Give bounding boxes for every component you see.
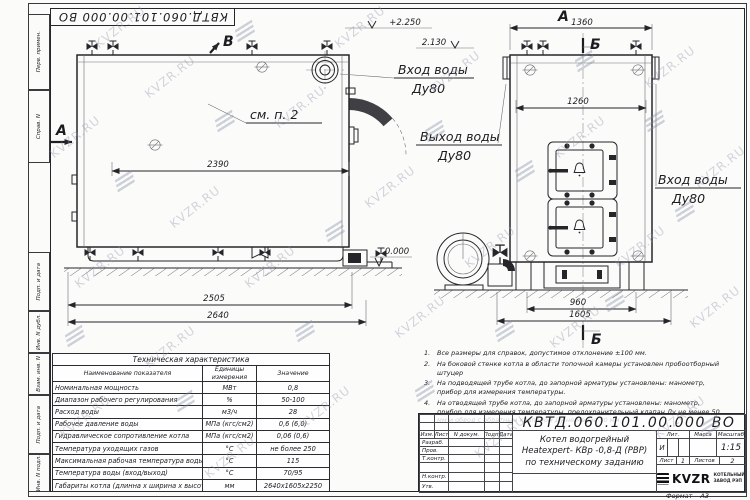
see-note-label: см. п. 2 xyxy=(250,107,298,122)
section-label-b-top: Б xyxy=(590,37,601,53)
elevation-zero: 0.000 xyxy=(385,247,409,257)
note-number: 2. xyxy=(424,360,437,378)
table-row: Максимальная рабочая температура воды °С… xyxy=(53,455,329,467)
note-text: Все размеры для справок, допустимое откл… xyxy=(437,349,724,358)
note-number: 1. xyxy=(424,349,437,358)
table-row: Температура уходящих газов °С не более 2… xyxy=(53,443,329,455)
inlet-label: Вход воды xyxy=(398,62,468,77)
company-cell: KVZR КОТЕЛЬНЫЙ ЗАВОД РЭП xyxy=(656,464,746,493)
inlet-dn-label: Ду80 xyxy=(411,81,445,96)
dim-2640: 2640 xyxy=(207,311,229,321)
kvzr-logo-icon xyxy=(657,473,669,485)
table-row: Расход воды м3/ч 28 xyxy=(53,406,329,418)
row-unit: % xyxy=(203,394,257,405)
company-name: КОТЕЛЬНЫЙ ЗАВОД РЭП xyxy=(713,473,745,484)
row-name: Расход воды xyxy=(53,406,203,417)
row-name: Гидравлическое сопротивление котла xyxy=(53,431,203,442)
product-name: Котел водогрейный Heatexpert- КВр -0,8-Д… xyxy=(512,430,657,474)
row-unit: мм xyxy=(203,480,257,492)
row-value: 70/95 xyxy=(257,468,329,479)
drawing-sheet: { "meta": { "doc_number": "КВТД.060.101.… xyxy=(0,0,750,500)
side-inlet-dn-label: Ду80 xyxy=(671,191,705,206)
row-name: Габариты котла (длинна х ширина х высота… xyxy=(53,480,203,492)
row-value: 28 xyxy=(257,406,329,417)
scale-value: 1:15 xyxy=(716,438,746,457)
dim-1260: 1260 xyxy=(567,97,589,107)
mass-value xyxy=(689,438,717,457)
note-text: На подводящей трубе котла, до запорной а… xyxy=(437,379,724,397)
row-unit: МВт xyxy=(203,382,257,393)
spec-table: Техническая характеристика Наименование … xyxy=(52,353,330,492)
spec-table-title: Техническая характеристика xyxy=(53,354,329,366)
row-name: Максимальная рабочая температура воды xyxy=(53,455,203,466)
row-value: 50-100 xyxy=(257,394,329,405)
table-row: Температура воды (вход/выход) °С 70/95 xyxy=(53,468,329,480)
section-label-a: А xyxy=(55,123,67,139)
note-number: 3. xyxy=(424,379,437,397)
row-value: 0,6 (6,0) xyxy=(257,419,329,430)
dim-2505: 2505 xyxy=(203,294,225,304)
margin-cell: Инв. N подл. xyxy=(28,454,50,492)
side-inlet-label: Вход воды xyxy=(658,172,728,187)
title-block-doc-number: КВТД.060.101.00.000 ВО xyxy=(512,414,746,431)
row-name: Номинальная мощность xyxy=(53,382,203,393)
row-name: Диапазон рабочего регулирования xyxy=(53,394,203,405)
dim-2390: 2390 xyxy=(207,160,229,170)
title-block: КВТД.060.101.00.000 ВО Изм. Лист N докум… xyxy=(418,413,745,492)
front-view: В А см. п. 2 Вход воды Ду80 Выход воды Д… xyxy=(50,18,506,326)
lower-door xyxy=(548,199,617,256)
row-unit: °С xyxy=(203,455,257,466)
outlet-dn-label: Ду80 xyxy=(437,148,471,163)
row-name: Рабочее давление воды xyxy=(53,419,203,430)
row-name: Температура уходящих газов xyxy=(53,443,203,454)
row-unit: °С xyxy=(203,443,257,454)
row-value: 0,06 (0,6) xyxy=(257,431,329,442)
door-swing-arc xyxy=(393,118,406,155)
elevation-mid: 2.130 xyxy=(422,38,446,48)
row-name: Температура воды (вход/выход) xyxy=(53,468,203,479)
side-view: А 1360 Б 1260 960 1605 Б Вход воды Ду80 xyxy=(434,9,741,348)
note-item: 2. На боковой стенке котла в области топ… xyxy=(424,360,724,378)
spec-table-rows: Номинальная мощность МВт 0,8 Диапазон ра… xyxy=(53,382,329,492)
note-item: 1. Все размеры для справок, допустимое о… xyxy=(424,349,724,358)
elevation-top: +2.250 xyxy=(389,18,420,28)
row-value: 115 xyxy=(257,455,329,466)
col-header-unit: Единицы измерения xyxy=(203,366,257,381)
table-row: Номинальная мощность МВт 0,8 xyxy=(53,382,329,394)
note-item: 3. На подводящей трубе котла, до запорно… xyxy=(424,379,724,397)
row-value: 0,8 xyxy=(257,382,329,393)
dim-960: 960 xyxy=(570,298,586,308)
dim-1360: 1360 xyxy=(571,18,593,28)
company-logo-text: KVZR xyxy=(672,472,711,486)
table-row: Рабочее давление воды МПа (кгс/см2) 0,6 … xyxy=(53,419,329,431)
section-label-v: В xyxy=(223,34,234,50)
margin-cell: Подп. и дата xyxy=(28,395,50,454)
row-value: 2640х1605х2250 xyxy=(257,480,329,492)
row-unit: °С xyxy=(203,468,257,479)
col-header-value: Значение xyxy=(257,366,329,381)
note-text: На боковой стенке котла в области топочн… xyxy=(437,360,724,378)
format-note: ФорматА3 xyxy=(630,492,745,500)
center-mark xyxy=(255,62,270,72)
row-unit: МПа (кгс/см2) xyxy=(203,419,257,430)
table-row: Гидравлическое сопротивление котла МПа (… xyxy=(53,431,329,443)
spec-table-header: Наименование показателя Единицы измерени… xyxy=(53,366,329,382)
view-label-a: А xyxy=(557,9,569,25)
row-value: не более 250 xyxy=(257,443,329,454)
table-row: Габариты котла (длинна х ширина х высота… xyxy=(53,480,329,492)
table-row: Диапазон рабочего регулирования % 50-100 xyxy=(53,394,329,406)
row-unit: м3/ч xyxy=(203,406,257,417)
section-label-b-bottom: Б xyxy=(591,332,602,348)
upper-door xyxy=(548,142,617,199)
center-mark xyxy=(148,140,163,150)
boiler-drawing: В А см. п. 2 Вход воды Ду80 Выход воды Д… xyxy=(0,0,750,360)
col-header-name: Наименование показателя xyxy=(53,366,203,381)
row-unit: МПа (кгс/см2) xyxy=(203,431,257,442)
dim-1605: 1605 xyxy=(569,310,591,320)
outlet-label: Выход воды xyxy=(420,129,500,144)
role-utv: Утв. xyxy=(419,481,449,493)
